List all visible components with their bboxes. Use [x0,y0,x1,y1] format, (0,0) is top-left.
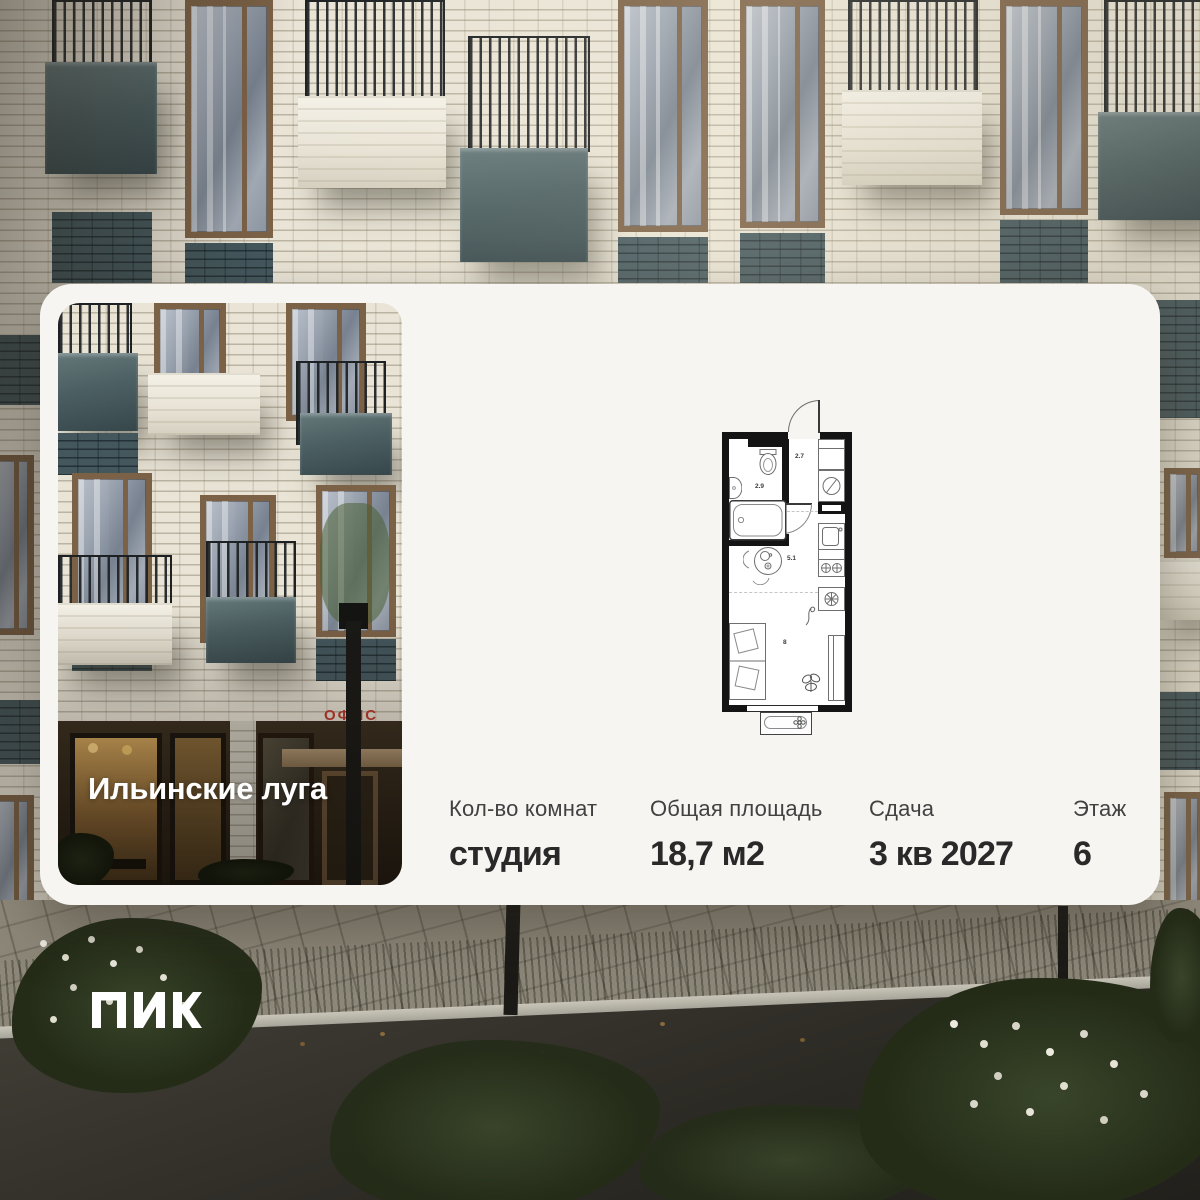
sofa-icon [729,623,766,700]
lamp-post [1058,906,1068,986]
spec-area: Общая площадь 18,7 м2 [650,796,823,874]
spec-rooms: Кол-во комнат студия [449,796,597,874]
room-label-bathroom: 2.9 [755,483,764,490]
listing-card: ОФИС Ильинские луга [40,284,1160,905]
washing-machine-icon [818,470,845,502]
lamp-post [503,900,520,1015]
entry-door-leaf [818,400,820,433]
bathtub-icon [729,500,787,541]
cabinet-icon [818,439,845,471]
pik-logo-icon [90,990,202,1030]
balcony-flower-icon [793,716,806,729]
spec-floor-label: Этаж [1073,796,1126,822]
spec-floor-value: 6 [1073,835,1126,874]
toilet-icon [758,449,778,476]
wardrobe-icon [828,635,845,701]
spec-delivery-label: Сдача [869,796,1013,822]
project-photo: ОФИС Ильинские луга [58,303,402,885]
pik-logo [90,990,202,1035]
kitchen-sink-icon [818,523,845,550]
spec-area-label: Общая площадь [650,796,823,822]
plan-balcony [760,712,812,735]
spec-rooms-label: Кол-во комнат [449,796,597,822]
promo-banner: ОФИС Ильинские луга [0,0,1200,1200]
floor-plan: 2.7 2.9 5.1 8 [722,432,852,712]
dining-table-icon [743,543,785,585]
spec-delivery: Сдача 3 кв 2027 [869,796,1013,874]
plant-icon [800,671,822,695]
spec-floor: Этаж 6 [1073,796,1126,874]
plan-window [747,705,818,712]
room-label-kitchen: 5.1 [787,555,796,562]
spec-area-value: 18,7 м2 [650,835,823,874]
sink-icon [729,477,742,499]
room-label-living: 8 [783,639,787,646]
room-label-hallway: 2.7 [795,453,804,460]
street-scene [0,900,1200,1200]
spec-rooms-value: студия [449,835,597,874]
fridge-icon [818,587,845,611]
project-name: Ильинские луга [88,771,327,807]
entry-door-arc [788,400,820,432]
white-flowers [950,1020,958,1028]
decor-plant-icon [802,605,818,627]
white-flowers [40,940,47,947]
spec-delivery-value: 3 кв 2027 [869,835,1013,874]
hob-icon [818,559,845,577]
